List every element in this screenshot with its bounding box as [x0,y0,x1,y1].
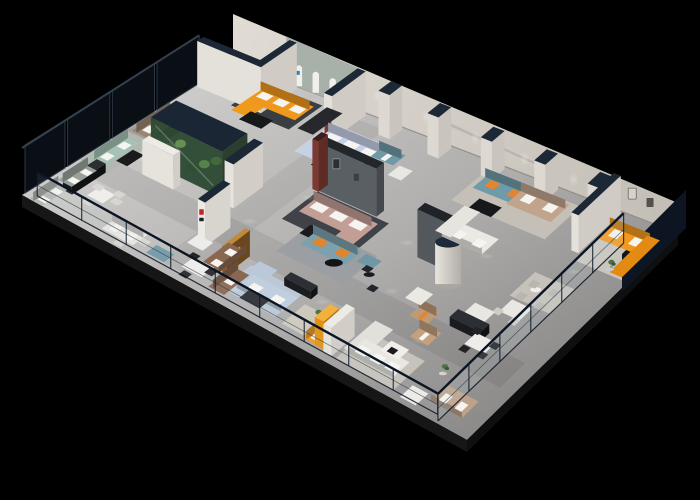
maroon-accent-wall [312,132,328,192]
wall-pillar [427,103,451,159]
wall-pillar [378,81,402,139]
floor-light-spot [478,253,494,259]
wall-downlight [471,131,481,145]
brand-logo-red [199,209,204,215]
brand-logo-dark [199,218,204,222]
side-table-marble [439,372,447,376]
partition-tv-frame [333,159,340,169]
showroom-render-frame [0,0,700,500]
display-table-round [364,272,375,277]
wall-art-frame [628,188,636,199]
display-arch [313,72,320,93]
wall-downlight [569,173,579,187]
coffee-table-oval-black [325,259,343,267]
dining-table-round-right [530,287,541,292]
floor-light-spot [384,288,400,294]
floor-light-spot [241,218,257,224]
column-cylinder [435,237,461,290]
partition-art-frame [354,174,359,181]
wall-downlight [520,152,530,166]
wall-art-frame-2 [647,198,654,207]
floor-light-spot [314,299,330,305]
showroom-floorplan-render [0,0,700,500]
floor-light-spot [399,239,415,245]
